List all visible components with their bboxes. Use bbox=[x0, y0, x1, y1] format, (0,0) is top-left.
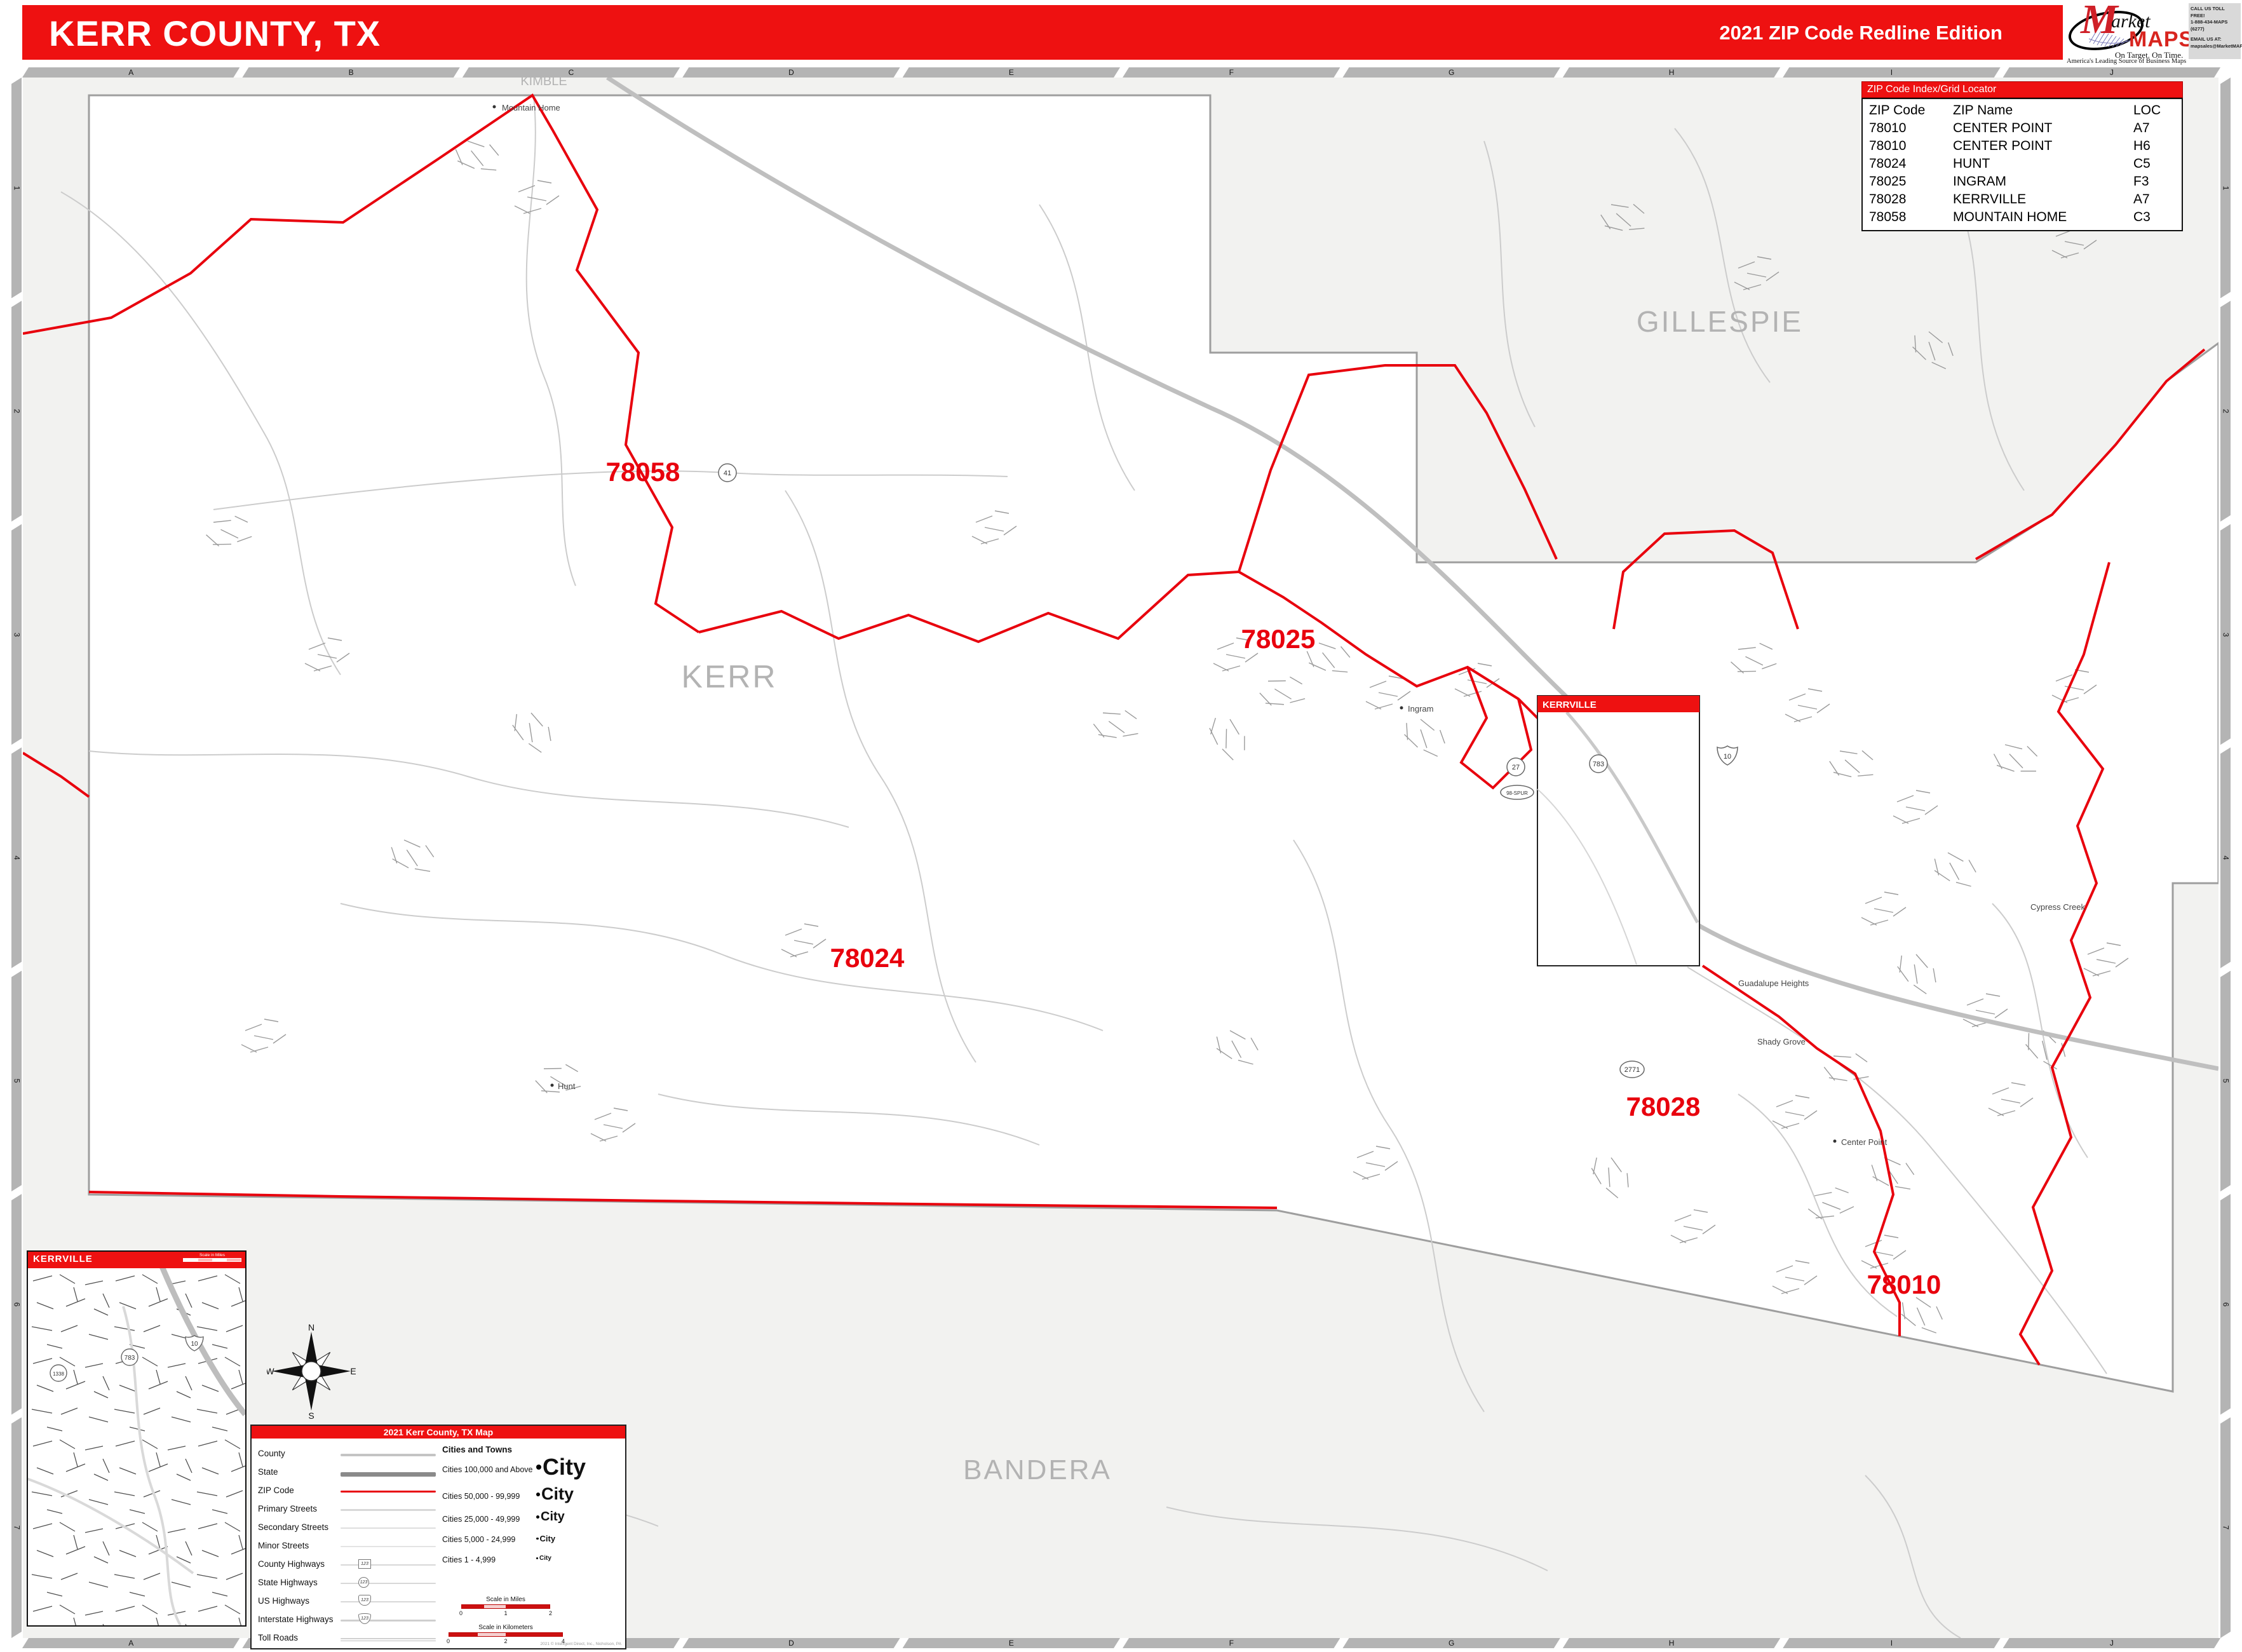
inset-title: KERRVILLE bbox=[33, 1254, 93, 1264]
grid-row: 5 bbox=[11, 971, 22, 1191]
zip-index-table: ZIP Code Index/Grid Locator ZIP Code ZIP… bbox=[1861, 81, 2183, 231]
city-class-label: Cities 50,000 - 99,999 bbox=[442, 1492, 520, 1501]
city-class-sample: City bbox=[536, 1510, 565, 1524]
contact-line: 1-888-434-MAPS (6277) bbox=[2191, 19, 2239, 32]
town-label: Mountain Home bbox=[502, 103, 560, 112]
state-hwy-shield: 1338 bbox=[53, 1371, 64, 1377]
grid-col: E bbox=[903, 1638, 1120, 1648]
grid-bar-top: A B C D E F G H I J bbox=[22, 67, 2220, 78]
grid-col: F bbox=[1123, 1638, 1340, 1648]
grid-row: 6 bbox=[2220, 1194, 2231, 1414]
city-class-sample: City bbox=[536, 1484, 574, 1504]
grid-col: B bbox=[242, 67, 459, 78]
grid-row: 3 bbox=[2220, 524, 2231, 745]
grid-row: 4 bbox=[11, 747, 22, 968]
scale-miles-ticks: 012 bbox=[459, 1610, 552, 1616]
logo-subtitle: America's Leading Source of Business Map… bbox=[2067, 58, 2187, 65]
scale-miles-label: Scale in Miles bbox=[461, 1596, 550, 1603]
state-hwy-shield: 783 bbox=[125, 1355, 135, 1362]
cities-header: Cities and Towns bbox=[442, 1445, 512, 1454]
grid-row: 6 bbox=[11, 1194, 22, 1414]
scale-km-bar bbox=[449, 1632, 563, 1637]
legend-item-label: Primary Streets bbox=[258, 1504, 317, 1513]
town-label: Ingram bbox=[1408, 704, 1433, 714]
grid-col: A bbox=[22, 67, 240, 78]
grid-col: H bbox=[1563, 67, 1780, 78]
grid-row: 1 bbox=[2220, 78, 2231, 298]
logo-contact-box: CALL US TOLL FREE! 1-888-434-MAPS (6277)… bbox=[2189, 3, 2241, 59]
scale-km-label: Scale in Kilometers bbox=[449, 1624, 563, 1631]
zip-index-header-row: ZIP Code ZIP Name LOC bbox=[1863, 102, 2182, 119]
compass-s: S bbox=[308, 1411, 314, 1419]
spur-shield: 98-SPUR bbox=[1506, 790, 1528, 796]
grid-col: I bbox=[1783, 1638, 2000, 1648]
zip-index-row: 78010CENTER POINTH6 bbox=[1863, 137, 2182, 155]
zip-label-78010: 78010 bbox=[1867, 1269, 1941, 1299]
compass-n: N bbox=[308, 1323, 314, 1332]
grid-col: D bbox=[682, 67, 900, 78]
legend-item-label: State bbox=[258, 1467, 278, 1477]
city-class-sample: City bbox=[536, 1555, 551, 1562]
state-hwy-shield: 27 bbox=[1512, 764, 1520, 771]
inset-marker-title: KERRVILLE bbox=[1543, 700, 1597, 710]
town-label: Shady Grove bbox=[1757, 1037, 1806, 1046]
town-label: Guadalupe Heights bbox=[1738, 978, 1809, 988]
grid-col: C bbox=[463, 67, 680, 78]
grid-bar-right: 1 2 3 4 5 6 7 bbox=[2220, 78, 2231, 1638]
map-legend: 2021 Kerr County, TX Map County State ZI… bbox=[250, 1425, 626, 1649]
us-hwy-shield-icon: 123 bbox=[358, 1595, 371, 1606]
zip-label-78025: 78025 bbox=[1241, 624, 1316, 654]
county-label-kimble: KIMBLE bbox=[520, 78, 567, 88]
grid-col: E bbox=[903, 67, 1120, 78]
grid-row: 2 bbox=[11, 301, 22, 521]
legend-copyright: 2021 © Intelligent Direct, Inc., Nichols… bbox=[540, 1642, 621, 1646]
grid-bar-left: 1 2 3 4 5 6 7 bbox=[11, 78, 22, 1638]
kerrville-inset-marker: KERRVILLE bbox=[1537, 696, 1699, 966]
legend-item-label: Toll Roads bbox=[258, 1633, 298, 1642]
grid-row: 3 bbox=[11, 524, 22, 745]
zip-index-row: 78025INGRAMF3 bbox=[1863, 173, 2182, 191]
city-class-sample: City bbox=[536, 1454, 586, 1480]
contact-line: EMAIL US AT: bbox=[2191, 36, 2239, 43]
interstate-shield: 10 bbox=[191, 1341, 198, 1348]
col-zip-name: ZIP Name bbox=[1953, 103, 2133, 118]
legend-item-label: State Highways bbox=[258, 1578, 318, 1587]
town-label: Cypress Creek bbox=[2030, 902, 2085, 912]
page-title: KERR COUNTY, TX bbox=[49, 13, 381, 54]
legend-title: 2021 Kerr County, TX Map bbox=[252, 1426, 625, 1439]
zip-index-row: 78028KERRVILLEA7 bbox=[1863, 191, 2182, 208]
title-banner: KERR COUNTY, TX 2021 ZIP Code Redline Ed… bbox=[22, 5, 2063, 60]
county-label-kerr: KERR bbox=[682, 659, 778, 694]
compass-e: E bbox=[350, 1366, 356, 1376]
grid-col: G bbox=[1342, 67, 1560, 78]
map-page: KERR COUNTY, TX 2021 ZIP Code Redline Ed… bbox=[0, 0, 2242, 1652]
inset-street-map: 10 783 1338 bbox=[28, 1268, 245, 1625]
legend-item-label: County bbox=[258, 1449, 285, 1458]
legend-item-label: County Highways bbox=[258, 1559, 325, 1569]
county-label-gillespie: GILLESPIE bbox=[1637, 305, 1803, 338]
city-class-label: Cities 25,000 - 49,999 bbox=[442, 1515, 520, 1524]
grid-col: J bbox=[2003, 67, 2220, 78]
edition-label: 2021 ZIP Code Redline Edition bbox=[1719, 22, 2002, 44]
city-class-label: Cities 100,000 and Above bbox=[442, 1465, 532, 1474]
state-hwy-shield-icon: 123 bbox=[358, 1577, 369, 1588]
grid-col: F bbox=[1123, 67, 1340, 78]
kerrville-inset-map: KERRVILLE Scale in Miles 10 bbox=[27, 1250, 246, 1627]
zip-index-row: 78024HUNTC5 bbox=[1863, 155, 2182, 173]
grid-row: 7 bbox=[2220, 1418, 2231, 1638]
legend-item-label: Interstate Highways bbox=[258, 1615, 334, 1624]
town-label: Center Point bbox=[1841, 1137, 1887, 1147]
zip-label-78028: 78028 bbox=[1626, 1092, 1701, 1121]
city-class-label: Cities 1 - 4,999 bbox=[442, 1555, 496, 1564]
grid-col: G bbox=[1342, 1638, 1560, 1648]
town-label: Hunt bbox=[558, 1081, 576, 1091]
zip-index-row: 78058MOUNTAIN HOMEC3 bbox=[1863, 208, 2182, 226]
grid-row: 1 bbox=[11, 78, 22, 298]
city-class-sample: City bbox=[536, 1534, 555, 1543]
contact-line: CALL US TOLL FREE! bbox=[2191, 6, 2239, 19]
grid-col: I bbox=[1783, 67, 2000, 78]
legend-item-label: ZIP Code bbox=[258, 1486, 294, 1495]
interstate-shield: 10 bbox=[1724, 753, 1731, 761]
state-hwy-shield: 783 bbox=[1593, 761, 1604, 768]
city-class-label: Cities 5,000 - 24,999 bbox=[442, 1535, 515, 1544]
grid-row: 4 bbox=[2220, 747, 2231, 968]
interstate-shield-icon: 123 bbox=[358, 1613, 371, 1624]
county-hwy-shield-icon: 123 bbox=[358, 1559, 371, 1569]
contact-line: mapsales@MarketMAPS.com bbox=[2191, 43, 2239, 50]
inset-header: KERRVILLE Scale in Miles bbox=[28, 1252, 245, 1268]
compass-rose-icon: N E S W bbox=[267, 1323, 356, 1419]
state-hwy-shield: 41 bbox=[724, 470, 731, 477]
inset-scale-bar: Scale in Miles bbox=[183, 1253, 241, 1262]
marketmaps-logo: M arket MAPS On Target. On Time. America… bbox=[2067, 2, 2241, 63]
legend-item-label: US Highways bbox=[258, 1596, 309, 1606]
state-hwy-shield: 2771 bbox=[1624, 1066, 1640, 1074]
legend-item-label: Secondary Streets bbox=[258, 1522, 328, 1532]
logo-maps: MAPS bbox=[2129, 27, 2194, 52]
col-zip-code: ZIP Code bbox=[1869, 103, 1953, 118]
grid-row: 2 bbox=[2220, 301, 2231, 521]
compass-w: W bbox=[267, 1366, 274, 1376]
zip-index-row: 78010CENTER POINTA7 bbox=[1863, 119, 2182, 137]
grid-col: A bbox=[22, 1638, 240, 1648]
zip-label-78058: 78058 bbox=[606, 457, 680, 487]
grid-col: H bbox=[1563, 1638, 1780, 1648]
zip-label-78024: 78024 bbox=[830, 943, 905, 973]
county-label-bandera: BANDERA bbox=[963, 1454, 1112, 1486]
scale-miles-bar bbox=[461, 1604, 550, 1609]
grid-row: 7 bbox=[11, 1418, 22, 1638]
zip-index-title: ZIP Code Index/Grid Locator bbox=[1861, 81, 2183, 98]
legend-item-label: Minor Streets bbox=[258, 1541, 309, 1550]
col-loc: LOC bbox=[2133, 103, 2184, 118]
grid-col: D bbox=[682, 1638, 900, 1648]
grid-col: J bbox=[2003, 1638, 2220, 1648]
grid-row: 5 bbox=[2220, 971, 2231, 1191]
